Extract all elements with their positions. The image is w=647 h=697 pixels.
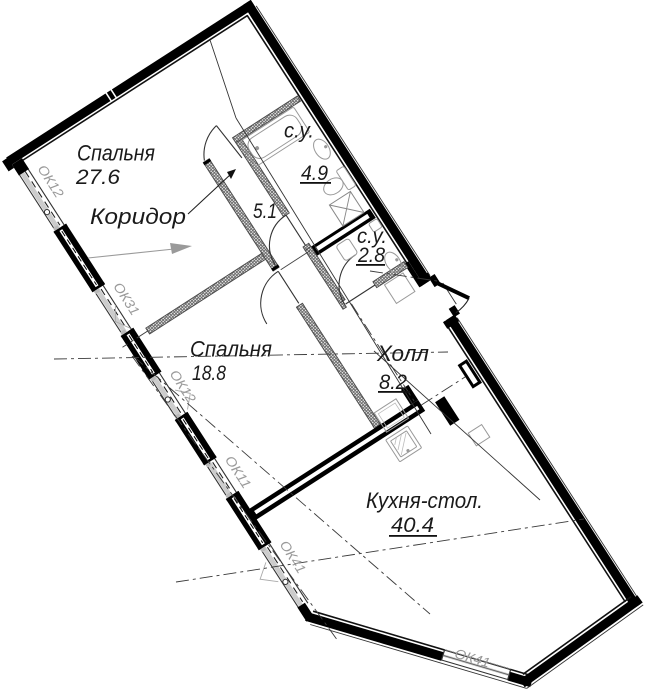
svg-text:2.8: 2.8 (357, 244, 385, 267)
svg-text:4.9: 4.9 (301, 162, 328, 185)
svg-text:18.8: 18.8 (192, 362, 226, 385)
svg-text:Спальня: Спальня (77, 141, 155, 166)
svg-text:5.1: 5.1 (253, 200, 277, 223)
svg-text:Спальня: Спальня (190, 337, 272, 362)
svg-text:Холл: Холл (376, 341, 429, 366)
svg-text:Коридор: Коридор (90, 204, 186, 229)
svg-text:27.6: 27.6 (75, 166, 120, 189)
svg-text:8.2: 8.2 (379, 371, 407, 394)
svg-text:40.4: 40.4 (391, 514, 434, 537)
svg-text:Кухня-стол.: Кухня-стол. (366, 488, 483, 513)
svg-text:с.у.: с.у. (284, 120, 314, 143)
